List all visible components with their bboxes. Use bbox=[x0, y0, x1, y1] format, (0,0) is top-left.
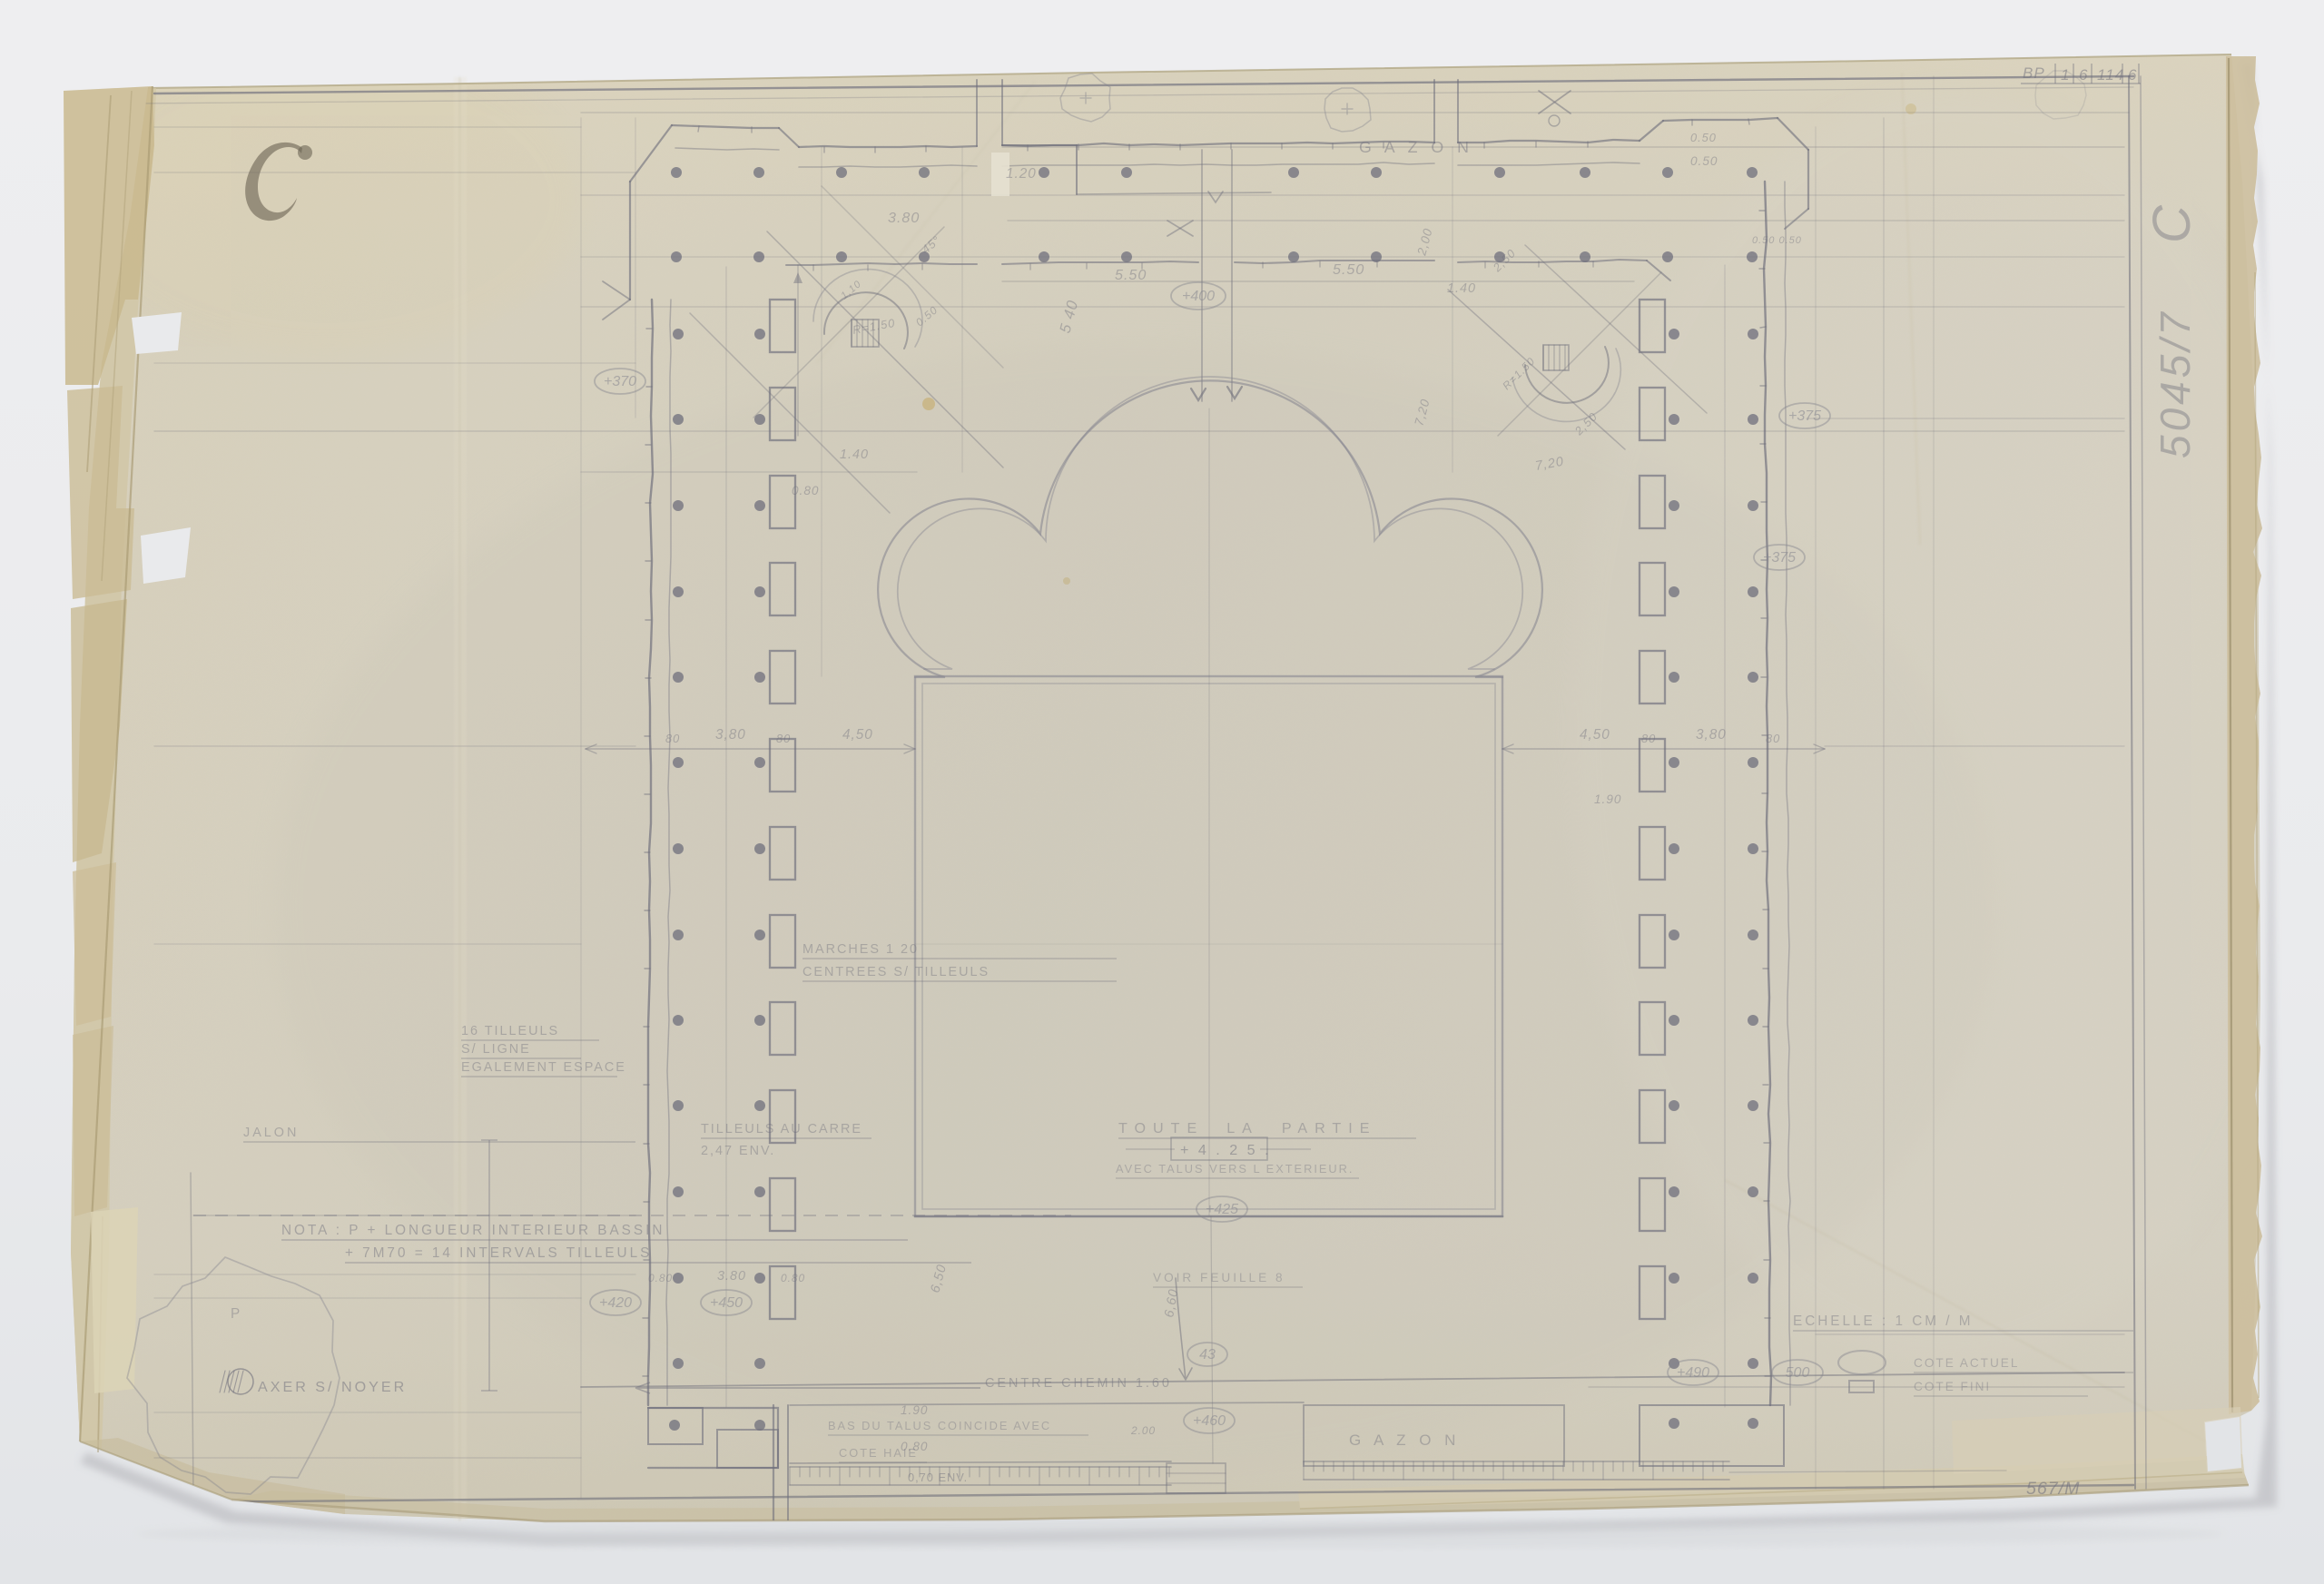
svg-text:COTE HAIE: COTE HAIE bbox=[839, 1446, 918, 1460]
svg-text:0.80: 0.80 bbox=[781, 1272, 805, 1284]
svg-text:+ 7M70 = 14 INTERVALS TILLE: + 7M70 = 14 INTERVALS TILLEULS bbox=[345, 1245, 652, 1261]
svg-text:+375: +375 bbox=[1763, 550, 1796, 566]
svg-text:80: 80 bbox=[1641, 732, 1656, 745]
svg-text:+ 4 . 2 5 .: + 4 . 2 5 . bbox=[1180, 1142, 1272, 1158]
svg-text:1.40: 1.40 bbox=[840, 448, 869, 462]
svg-text:C: C bbox=[2142, 204, 2201, 243]
svg-text:COTE ACTUEL: COTE ACTUEL bbox=[1914, 1356, 2019, 1370]
svg-text:JALON: JALON bbox=[243, 1126, 299, 1140]
svg-text:ECHELLE : 1 CM / M: ECHELLE : 1 CM / M bbox=[1793, 1313, 1974, 1329]
svg-text:TILLEULS AU CARRE: TILLEULS AU CARRE bbox=[701, 1122, 862, 1136]
svg-text:5045/7: 5045/7 bbox=[2152, 309, 2199, 458]
svg-text:1: 1 bbox=[2061, 66, 2070, 84]
svg-text:NOTA : P + LONGUEUR INTERIEU: NOTA : P + LONGUEUR INTERIEUR BASSIN bbox=[281, 1223, 665, 1238]
svg-text:1.20: 1.20 bbox=[1006, 166, 1037, 182]
svg-text:43: 43 bbox=[1199, 1347, 1216, 1363]
svg-text:AVEC TALUS VERS L EXTERIEUR.: AVEC TALUS VERS L EXTERIEUR. bbox=[1116, 1162, 1354, 1176]
svg-text:6: 6 bbox=[2079, 66, 2088, 84]
svg-text:0.50: 0.50 bbox=[1690, 154, 1718, 168]
svg-text:3,80: 3,80 bbox=[715, 727, 746, 743]
svg-text:COTE FINI: COTE FINI bbox=[1914, 1380, 1991, 1393]
svg-text:80: 80 bbox=[1766, 732, 1780, 745]
svg-text:5.50: 5.50 bbox=[1333, 261, 1364, 278]
svg-text:80: 80 bbox=[665, 732, 680, 745]
svg-text:+400: +400 bbox=[1182, 289, 1215, 304]
svg-text:0,70 ENV.: 0,70 ENV. bbox=[908, 1471, 968, 1484]
svg-text:2.00: 2.00 bbox=[1130, 1424, 1156, 1437]
svg-text:AXER S/ NOYER: AXER S/ NOYER bbox=[258, 1379, 407, 1395]
svg-text:+425: +425 bbox=[1206, 1202, 1238, 1217]
svg-text:3.80: 3.80 bbox=[717, 1269, 746, 1284]
svg-text:+490: +490 bbox=[1677, 1365, 1709, 1381]
svg-text:S/ LIGNE: S/ LIGNE bbox=[461, 1042, 531, 1057]
svg-text:1.90: 1.90 bbox=[901, 1403, 928, 1417]
svg-text:0.50: 0.50 bbox=[1690, 131, 1717, 144]
svg-text:VOIR FEUILLE 8: VOIR FEUILLE 8 bbox=[1153, 1271, 1285, 1284]
svg-text:80: 80 bbox=[776, 732, 791, 745]
svg-text:1.90: 1.90 bbox=[1594, 792, 1621, 806]
svg-text:0.80: 0.80 bbox=[792, 484, 819, 497]
svg-text:CENTREES S/ TILLEULS: CENTREES S/ TILLEULS bbox=[803, 965, 990, 979]
svg-text:3,80: 3,80 bbox=[1696, 727, 1727, 743]
svg-text:4,50: 4,50 bbox=[1580, 727, 1610, 743]
svg-text:G A Z O N: G A Z O N bbox=[1349, 1432, 1460, 1449]
svg-text:+460: +460 bbox=[1193, 1413, 1226, 1429]
svg-text:BP: BP bbox=[2023, 64, 2045, 82]
svg-text:MARCHES 1 20: MARCHES 1 20 bbox=[803, 942, 919, 957]
svg-text:TOUTE LA PARTIE: TOUTE LA PARTIE bbox=[1118, 1120, 1376, 1136]
svg-text:+370: +370 bbox=[604, 374, 636, 389]
svg-text:4,50: 4,50 bbox=[842, 727, 873, 743]
svg-text:2,47 ENV.: 2,47 ENV. bbox=[701, 1144, 775, 1158]
svg-text:1.40: 1.40 bbox=[1447, 281, 1476, 296]
svg-text:CENTRE CHEMIN 1.60: CENTRE CHEMIN 1.60 bbox=[985, 1376, 1172, 1391]
svg-text:+375: +375 bbox=[1788, 408, 1821, 424]
svg-text:0.80: 0.80 bbox=[648, 1272, 673, 1284]
svg-text:G A Z O N: G A Z O N bbox=[1359, 138, 1473, 156]
svg-text:+450: +450 bbox=[710, 1295, 743, 1311]
svg-text:5.50: 5.50 bbox=[1115, 267, 1147, 283]
svg-text:BAS DU TALUS COINCIDE AVEC: BAS DU TALUS COINCIDE AVEC bbox=[828, 1419, 1051, 1432]
svg-text:114: 114 bbox=[2097, 66, 2124, 84]
svg-text:EGALEMENT ESPACE: EGALEMENT ESPACE bbox=[461, 1060, 626, 1075]
svg-text:500: 500 bbox=[1786, 1365, 1810, 1381]
svg-text:3.80: 3.80 bbox=[888, 210, 920, 226]
svg-text:0.50 0.50: 0.50 0.50 bbox=[1752, 235, 1802, 246]
svg-text:P: P bbox=[231, 1306, 240, 1322]
svg-text:+420: +420 bbox=[599, 1295, 632, 1311]
svg-text:6: 6 bbox=[2128, 66, 2137, 84]
svg-text:16 TILLEULS: 16 TILLEULS bbox=[461, 1024, 559, 1038]
